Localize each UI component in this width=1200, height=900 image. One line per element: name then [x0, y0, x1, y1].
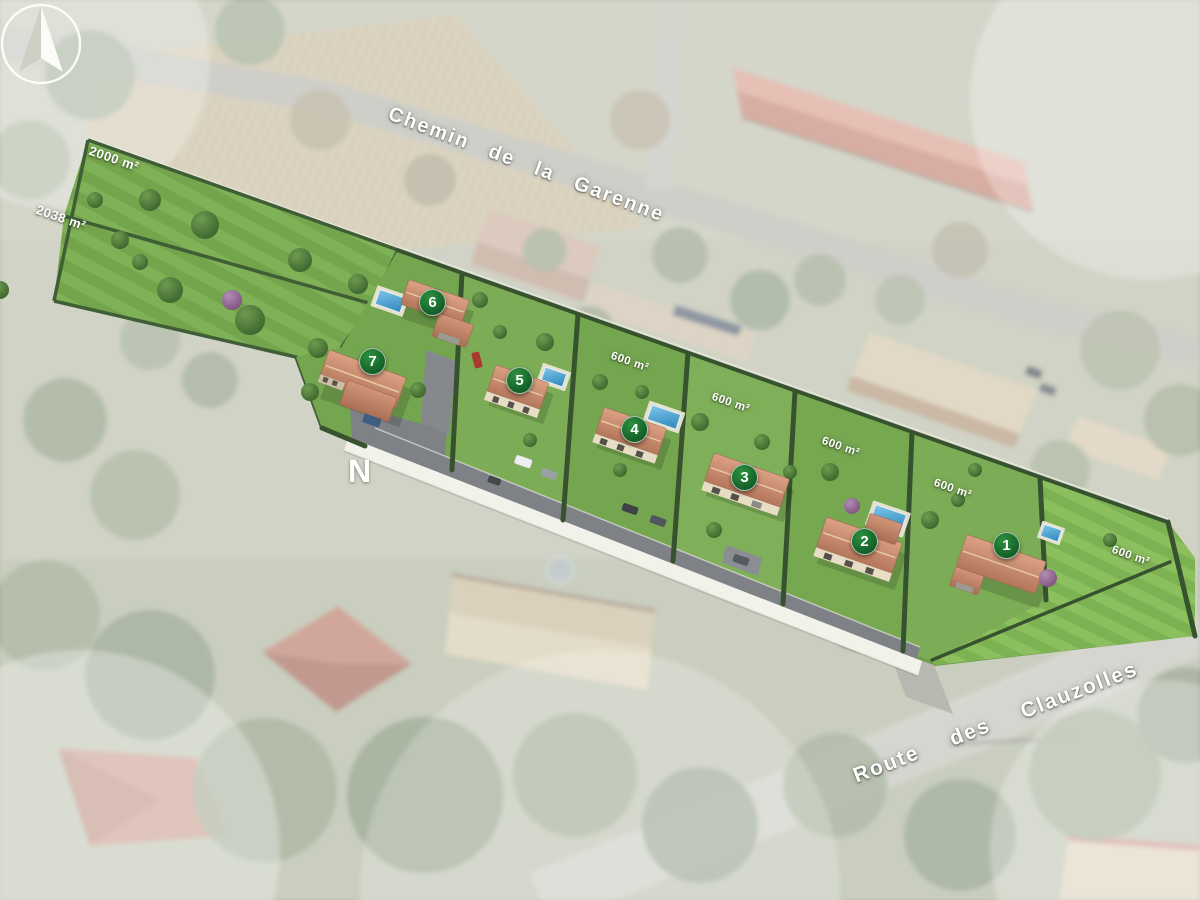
lot-number-badge-7: 7	[359, 348, 386, 375]
aerial-scene	[0, 0, 1200, 900]
lot-number-badge-6: 6	[419, 289, 446, 316]
masterplan-rendering: Chemin de la Garenne Route des Clauzolle…	[0, 0, 1200, 900]
lot-number-badge-1: 1	[993, 532, 1020, 559]
lot-number-badge-2: 2	[851, 528, 878, 555]
lot-number-badge-5: 5	[506, 367, 533, 394]
north-arrow-icon	[0, 0, 84, 84]
lot-number-badge-3: 3	[731, 464, 758, 491]
lot-number-badge-4: 4	[621, 416, 648, 443]
